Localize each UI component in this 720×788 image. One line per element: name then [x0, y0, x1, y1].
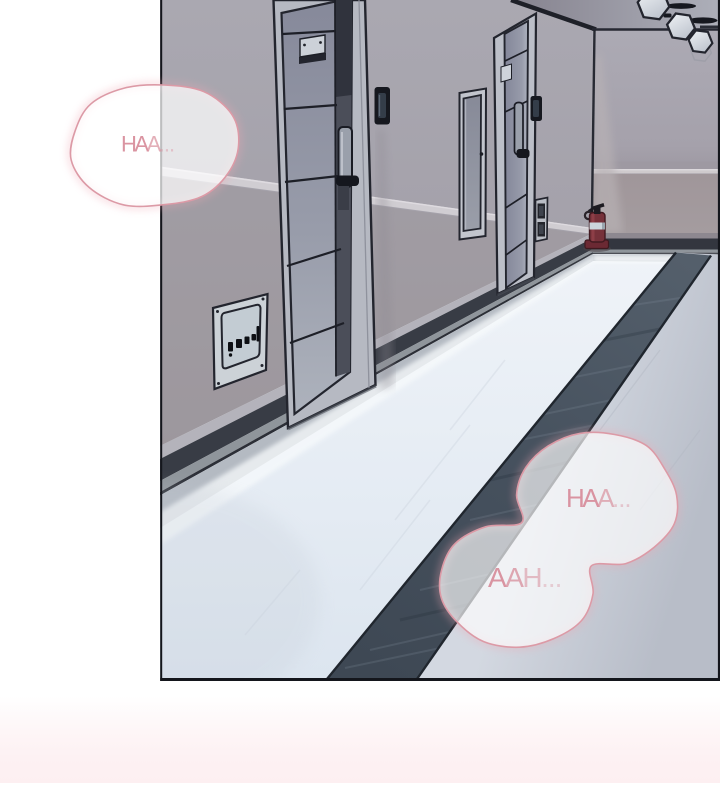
svg-text:HAA...: HAA... — [121, 132, 174, 157]
svg-text:HAA...: HAA... — [566, 483, 631, 513]
svg-text:AAH...: AAH... — [488, 562, 561, 593]
